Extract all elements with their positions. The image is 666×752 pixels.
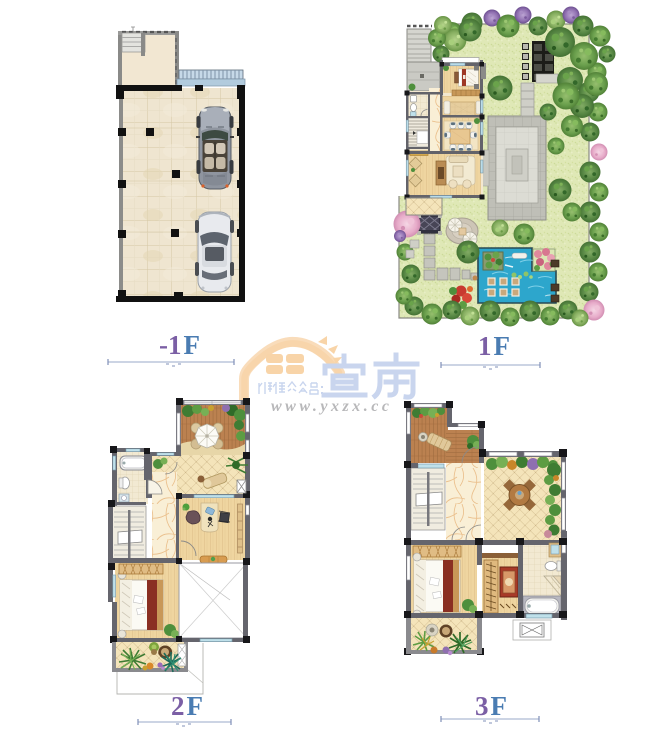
svg-text:1F: 1F — [478, 331, 510, 361]
svg-text:www.yxzx.cc: www.yxzx.cc — [271, 398, 392, 415]
svg-text:2F: 2F — [171, 691, 203, 721]
svg-text:3F: 3F — [475, 691, 507, 721]
svg-text:-1F: -1F — [159, 330, 200, 360]
